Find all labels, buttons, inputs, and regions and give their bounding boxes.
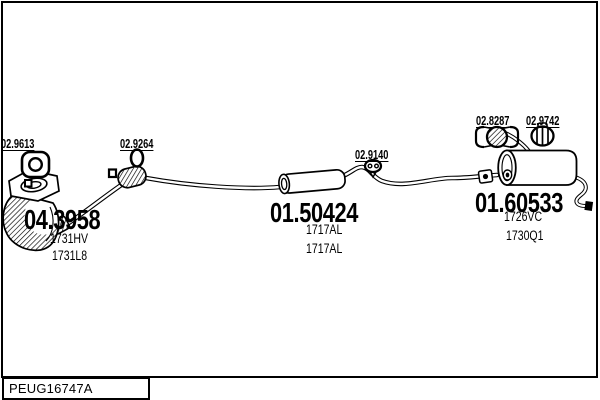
part-link-02-8287[interactable]: 02.8287 bbox=[476, 115, 521, 128]
centre-silencer-drawing bbox=[278, 169, 346, 194]
oe-ref-rear-1: 1726VC bbox=[504, 210, 553, 224]
part-link-02-9613[interactable]: 02.9613 bbox=[1, 138, 46, 151]
oe-ref-catalyst-2: 1731L8 bbox=[52, 249, 97, 263]
ring-seal-icon bbox=[131, 150, 143, 167]
diagram-code-box: PEUG16747A bbox=[2, 377, 150, 400]
part-link-02-9264[interactable]: 02.9264 bbox=[120, 138, 165, 151]
part-link-02-9140[interactable]: 02.9140 bbox=[355, 149, 400, 162]
pipe-coupling bbox=[109, 164, 148, 189]
inlet-bracket bbox=[478, 170, 493, 184]
exhaust-diagram-page: 02.9613 02.9264 02.9140 02.8287 02.9742 … bbox=[0, 0, 600, 400]
oe-ref-centre-2: 1717AL bbox=[306, 242, 353, 256]
diagram-code: PEUG16747A bbox=[4, 381, 93, 396]
part-link-02-9742[interactable]: 02.9742 bbox=[526, 115, 571, 128]
part-number-catalyst[interactable]: 04.3958 bbox=[24, 205, 122, 234]
oe-ref-rear-2: 1730Q1 bbox=[506, 229, 554, 243]
rear-silencer-drawing bbox=[498, 150, 576, 185]
oe-ref-catalyst-1: 1731HV bbox=[50, 232, 99, 246]
oe-ref-centre-1: 1717AL bbox=[306, 223, 353, 237]
